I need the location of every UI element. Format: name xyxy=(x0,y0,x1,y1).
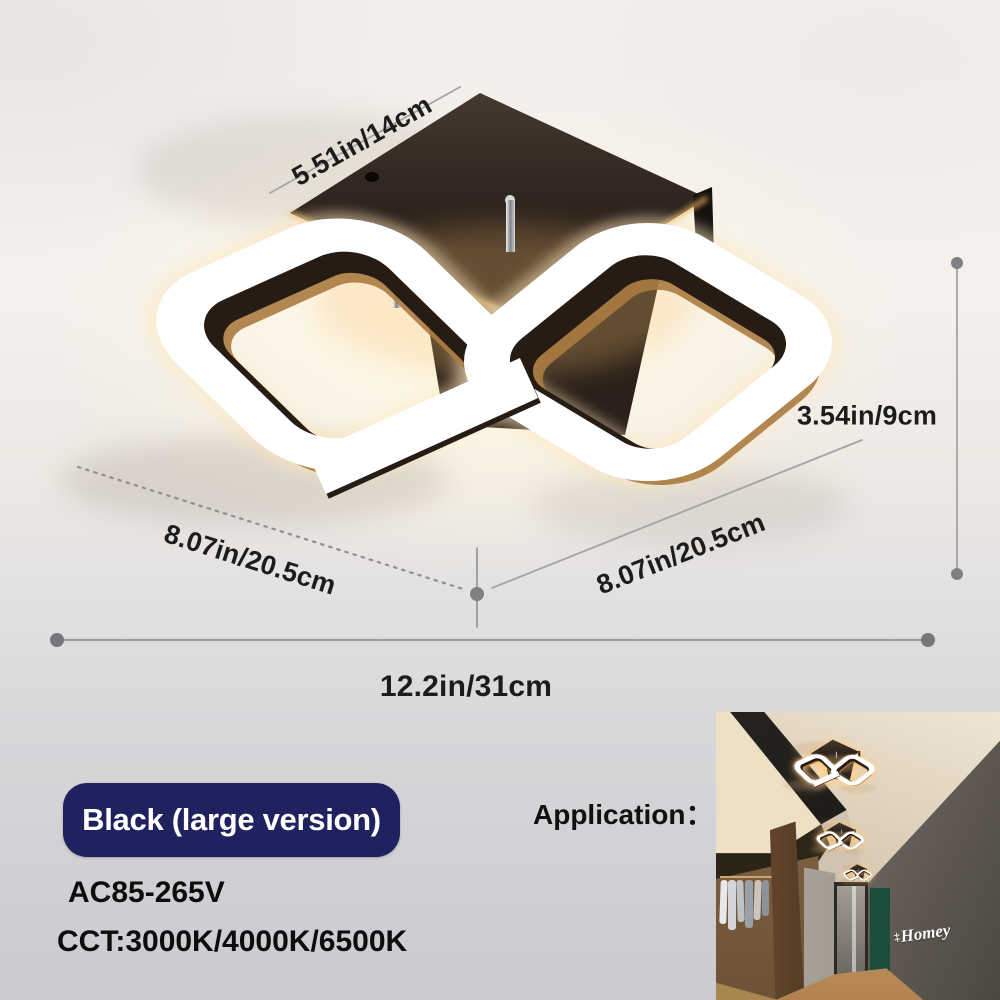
application-photo: ‡Homey xyxy=(716,712,1000,1000)
installed-lamps xyxy=(716,712,1000,1000)
variant-badge: Black (large version) xyxy=(63,783,400,857)
dim-label-height: 3.54in/9cm xyxy=(797,401,937,432)
mini-ceiling-lamp xyxy=(810,823,865,855)
center-joint-dot xyxy=(470,587,484,601)
mini-ceiling-lamp xyxy=(783,740,876,793)
voltage-text: AC85-265V xyxy=(68,876,225,910)
mini-ceiling-lamp xyxy=(839,864,872,883)
cct-text: CCT:3000K/4000K/6500K xyxy=(57,925,407,959)
variant-badge-label: Black (large version) xyxy=(82,802,381,838)
dim-label-total-width: 12.2in/31cm xyxy=(380,670,552,704)
application-label: Application： xyxy=(533,793,713,833)
product-image: 5.51in/14cm 3.54in/9cm 8.07in/20.5cm 8.0… xyxy=(0,0,1000,1000)
